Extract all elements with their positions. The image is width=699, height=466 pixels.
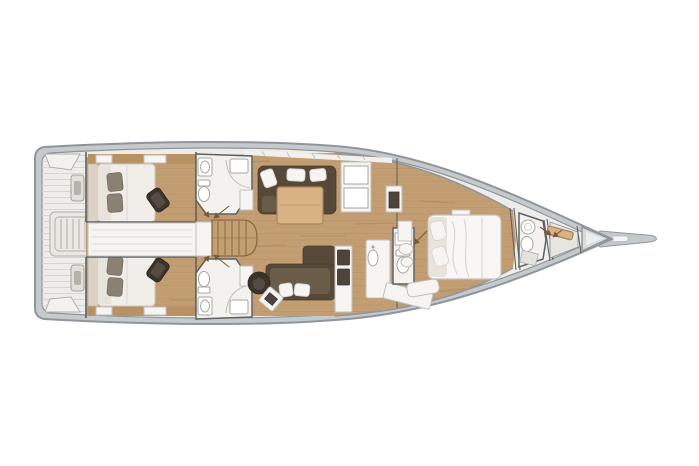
salon-cabinet-aft-top: [240, 190, 253, 210]
aft-cabin-top-locker-1: [96, 155, 112, 163]
aft-cabin-bottom-locker-2: [144, 307, 166, 315]
companionway-landing: [196, 222, 212, 256]
engine-corridor: [88, 222, 212, 256]
winch-top-drum: [74, 181, 81, 195]
forward-head-sink: [521, 220, 535, 234]
aft-cabin-top-locker-2: [144, 155, 166, 163]
sofa-pillow-2: [287, 169, 306, 182]
aft-cabin-bottom-locker-1: [96, 307, 112, 315]
forward-head-toilet: [521, 237, 533, 252]
master-stool-1: [399, 244, 413, 255]
aft-head-top-toilet-tank: [198, 180, 210, 186]
sofa-pillow-3: [309, 168, 326, 182]
aft-head-top-sink: [201, 161, 210, 173]
aft-cabin-top-pillow-2: [107, 193, 123, 212]
aft-cabin-top-headboard: [88, 164, 98, 222]
chaise-pillow-2: [294, 283, 310, 296]
bowsprit-slot: [612, 236, 628, 242]
yacht-floorplan-stage: [0, 0, 699, 466]
nav-unit-screen: [389, 192, 399, 208]
master-vanity: [398, 221, 412, 241]
salon-l-sofa-seat: [262, 196, 276, 212]
galley-appliance-1: [338, 250, 350, 265]
winch-bottom-drum: [74, 271, 81, 285]
companionway: [212, 220, 257, 256]
galley-appliance-2: [338, 269, 350, 285]
aft-head-bottom-sink: [201, 300, 210, 312]
aft-head-top-toilet: [199, 187, 210, 202]
aft-head-bottom-shower-bench: [230, 300, 248, 314]
aft-head-bottom-toilet-tank: [198, 287, 210, 293]
aft-head-top-shower-bench: [230, 159, 248, 173]
galley-sink: [368, 250, 378, 266]
aft-head-bottom-toilet: [199, 272, 210, 287]
aft-cabin-bottom-pillow-2: [107, 277, 123, 296]
yacht-floorplan-drawing: [0, 0, 699, 466]
round-armchair-cushion: [253, 278, 265, 290]
master-stool-2: [401, 257, 413, 267]
galley-faucet: [372, 246, 375, 249]
salon-cabinet-shelf-2: [344, 188, 368, 208]
aft-cabin-top-pillow-1: [107, 172, 124, 191]
salon-cabinet-shelf-1: [344, 166, 368, 184]
aft-cabin-bottom-pillow-1: [107, 256, 124, 275]
